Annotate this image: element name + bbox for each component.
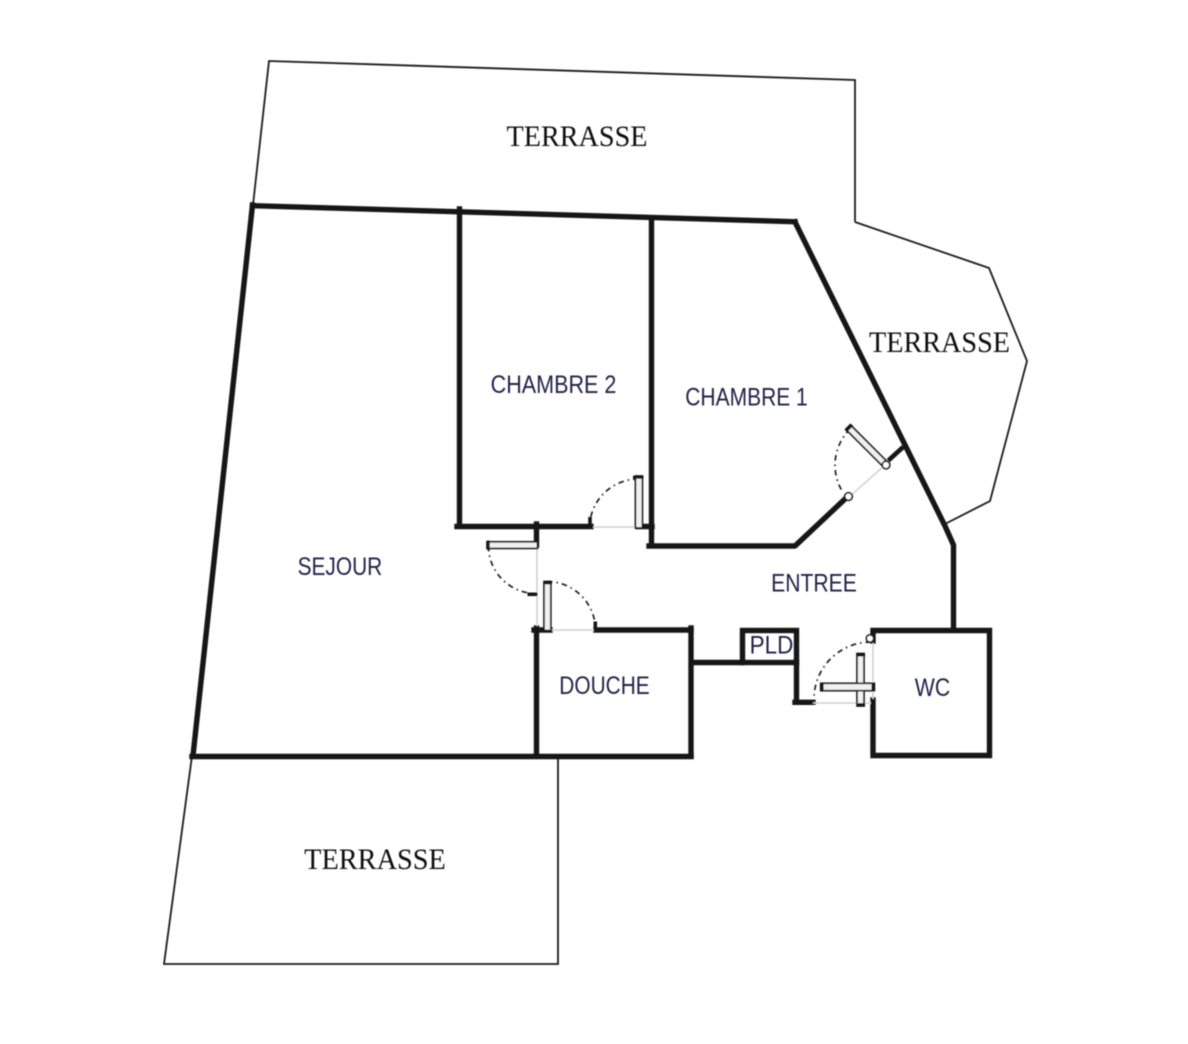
svg-text:PLD: PLD <box>750 631 794 659</box>
svg-text:WC: WC <box>915 673 950 701</box>
svg-text:SEJOUR: SEJOUR <box>298 552 383 580</box>
svg-text:TERRASSE: TERRASSE <box>304 843 446 876</box>
svg-text:CHAMBRE 2: CHAMBRE 2 <box>491 371 617 399</box>
svg-text:TERRASSE: TERRASSE <box>869 326 1010 359</box>
svg-text:ENTREE: ENTREE <box>771 569 857 597</box>
svg-text:TERRASSE: TERRASSE <box>506 120 647 153</box>
svg-text:DOUCHE: DOUCHE <box>559 671 649 699</box>
svg-text:CHAMBRE 1: CHAMBRE 1 <box>685 383 807 411</box>
